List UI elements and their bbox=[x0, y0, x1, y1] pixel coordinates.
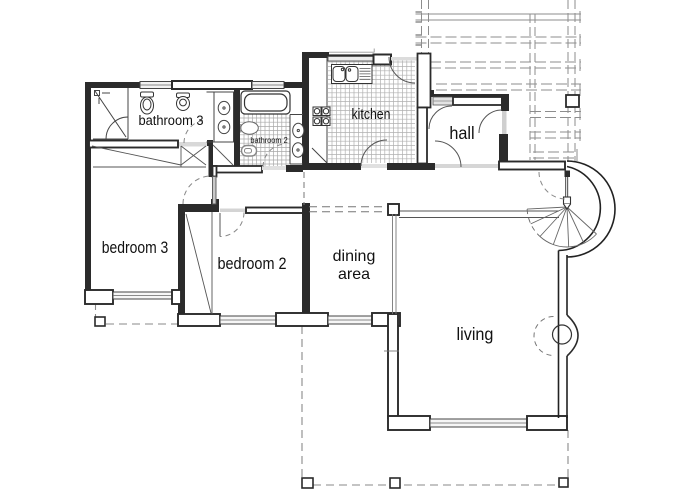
svg-text:dining: dining bbox=[333, 248, 376, 265]
svg-text:kitchen: kitchen bbox=[352, 106, 391, 122]
svg-text:hall: hall bbox=[449, 123, 474, 143]
svg-text:bedroom 2: bedroom 2 bbox=[217, 255, 286, 273]
svg-text:bathroom 3: bathroom 3 bbox=[138, 113, 203, 129]
svg-text:bathroom 2: bathroom 2 bbox=[250, 136, 288, 146]
svg-text:bedroom 3: bedroom 3 bbox=[102, 239, 169, 258]
svg-text:living: living bbox=[457, 324, 494, 344]
svg-text:area: area bbox=[338, 266, 370, 283]
